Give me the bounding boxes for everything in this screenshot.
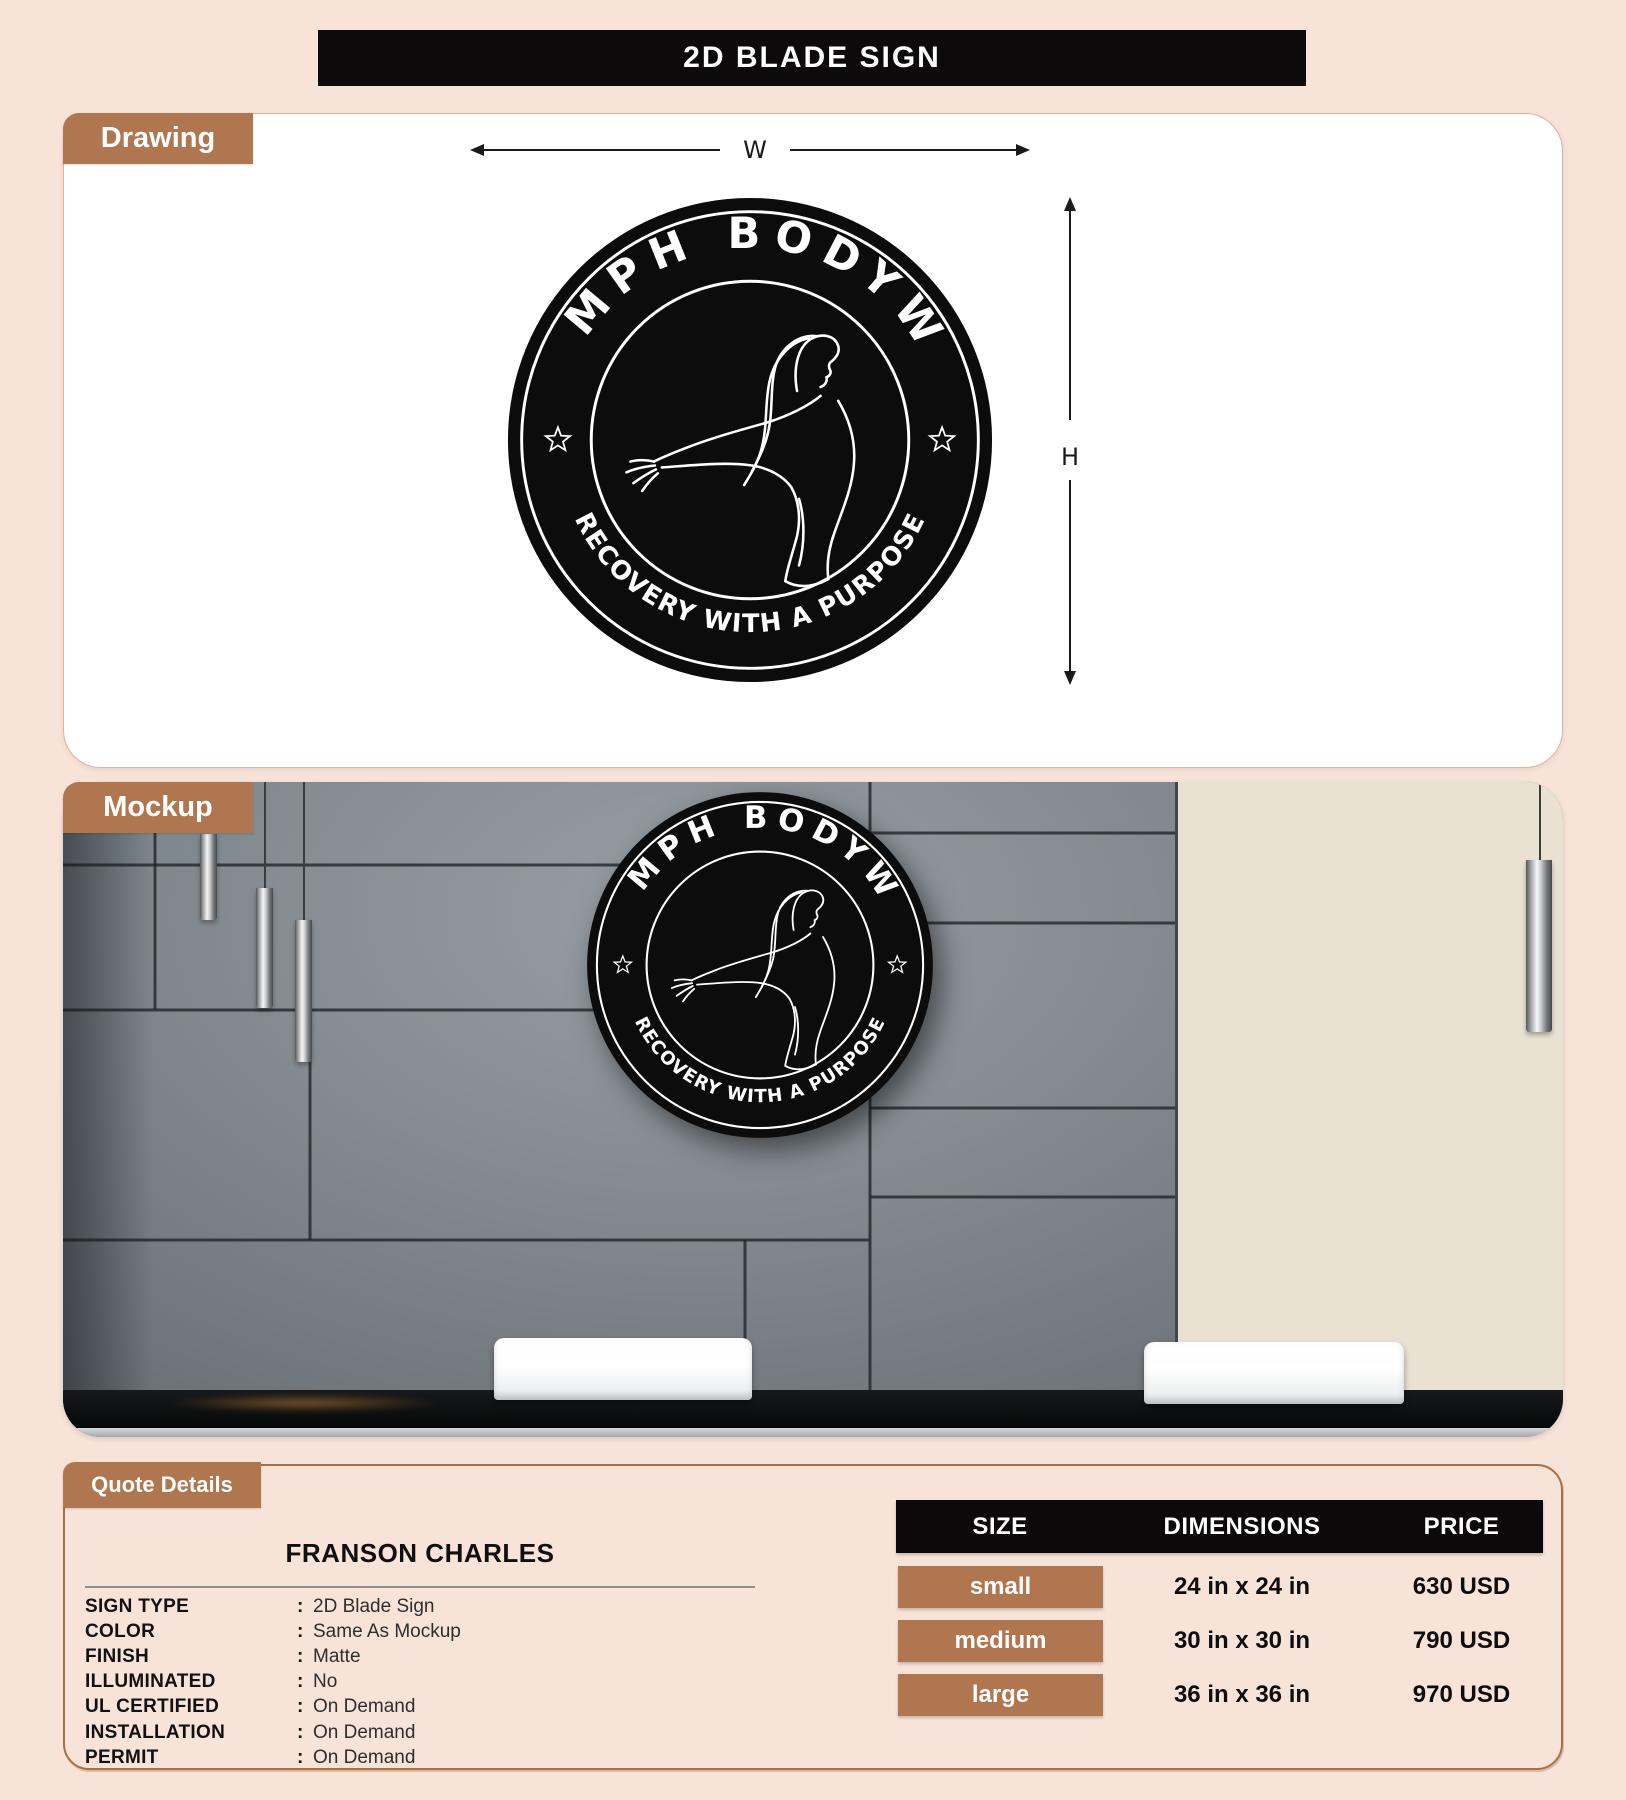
field-label: PERMIT [85,1747,297,1769]
quote-section-tab: Quote Details [63,1462,261,1508]
pricing-row: large 36 in x 36 in 970 USD [896,1674,1543,1716]
field-value: On Demand [313,1696,415,1718]
quote-field-row: UL CERTIFIED : On Demand [85,1695,785,1720]
field-separator: : [297,1621,313,1643]
mockup-blade-sign [585,790,935,1140]
arrow-left-icon [470,144,484,156]
quote-field-row: INSTALLATION : On Demand [85,1720,785,1745]
divider [85,1586,755,1588]
pendant-cord [303,782,305,920]
col-header-price: PRICE [1380,1513,1543,1541]
field-value: No [313,1671,337,1693]
quote-field-row: COLOR : Same As Mockup [85,1619,785,1644]
arrow-right-icon [1016,144,1030,156]
pendant-light [1526,860,1552,1032]
field-label: SIGN TYPE [85,1596,297,1618]
washbasin [494,1338,752,1400]
floor-strip [63,1428,1563,1437]
field-separator: : [297,1722,313,1744]
quote-field-row: ILLUMINATED : No [85,1670,785,1695]
pricing-row: small 24 in x 24 in 630 USD [896,1566,1543,1608]
washbasin [1144,1342,1404,1404]
pendant-light [295,920,312,1062]
quote-sheet-page: TRIUMPH BODYWORK RECOVERY WITH A PURPOSE [0,0,1626,1800]
field-separator: : [297,1596,313,1618]
customer-name: FRANSON CHARLES [85,1538,755,1569]
pricing-header: SIZE DIMENSIONS PRICE [896,1500,1543,1553]
pricing-row: medium 30 in x 30 in 790 USD [896,1620,1543,1662]
field-label: FINISH [85,1646,297,1668]
wood-panel [1175,782,1563,1437]
counter-light-reflection [163,1394,443,1412]
field-value: Same As Mockup [313,1621,461,1643]
pendant-cord [264,782,266,888]
quote-tab-label: Quote Details [91,1472,233,1498]
field-separator: : [297,1646,313,1668]
arrow-down-icon [1064,671,1076,685]
page-title: 2D BLADE SIGN [683,41,941,75]
wall-corner-shadow [63,782,153,1437]
field-value: 2D Blade Sign [313,1596,434,1618]
field-value: On Demand [313,1722,415,1744]
dimensions-value: 24 in x 24 in [1104,1573,1380,1601]
pricing-table: SIZE DIMENSIONS PRICE small 24 in x 24 i… [896,1500,1543,1716]
field-separator: : [297,1747,313,1769]
width-label: W [743,136,767,164]
price-value: 790 USD [1380,1627,1543,1655]
mockup-tab-label: Mockup [103,791,213,824]
field-separator: : [297,1671,313,1693]
quote-field-row: SIGN TYPE : 2D Blade Sign [85,1594,785,1619]
height-label: H [1061,443,1079,471]
mockup-panel [63,782,1563,1437]
pendant-cord [1539,782,1541,860]
size-large-button[interactable]: large [898,1674,1103,1716]
pendant-light [256,888,273,1008]
drawing-section-tab: Drawing [63,113,253,164]
field-label: INSTALLATION [85,1722,297,1744]
field-value: On Demand [313,1747,415,1769]
size-small-button[interactable]: small [898,1566,1103,1608]
col-header-dimensions: DIMENSIONS [1104,1513,1380,1541]
arrow-up-icon [1064,197,1076,211]
price-value: 630 USD [1380,1573,1543,1601]
dimensions-value: 30 in x 30 in [1104,1627,1380,1655]
price-value: 970 USD [1380,1681,1543,1709]
quote-fields: SIGN TYPE : 2D Blade Sign COLOR : Same A… [85,1594,785,1770]
field-label: ILLUMINATED [85,1671,297,1693]
field-separator: : [297,1696,313,1718]
pendant-light [200,834,217,920]
col-header-size: SIZE [896,1513,1104,1541]
dimensions-value: 36 in x 36 in [1104,1681,1380,1709]
quote-field-row: PERMIT : On Demand [85,1745,785,1770]
size-medium-button[interactable]: medium [898,1620,1103,1662]
dimension-annotations: W H [63,113,1563,768]
field-label: COLOR [85,1621,297,1643]
title-banner: 2D BLADE SIGN [318,30,1306,86]
mockup-section-tab: Mockup [63,782,253,833]
drawing-tab-label: Drawing [101,122,215,155]
field-value: Matte [313,1646,361,1668]
field-label: UL CERTIFIED [85,1696,297,1718]
quote-field-row: FINISH : Matte [85,1644,785,1669]
